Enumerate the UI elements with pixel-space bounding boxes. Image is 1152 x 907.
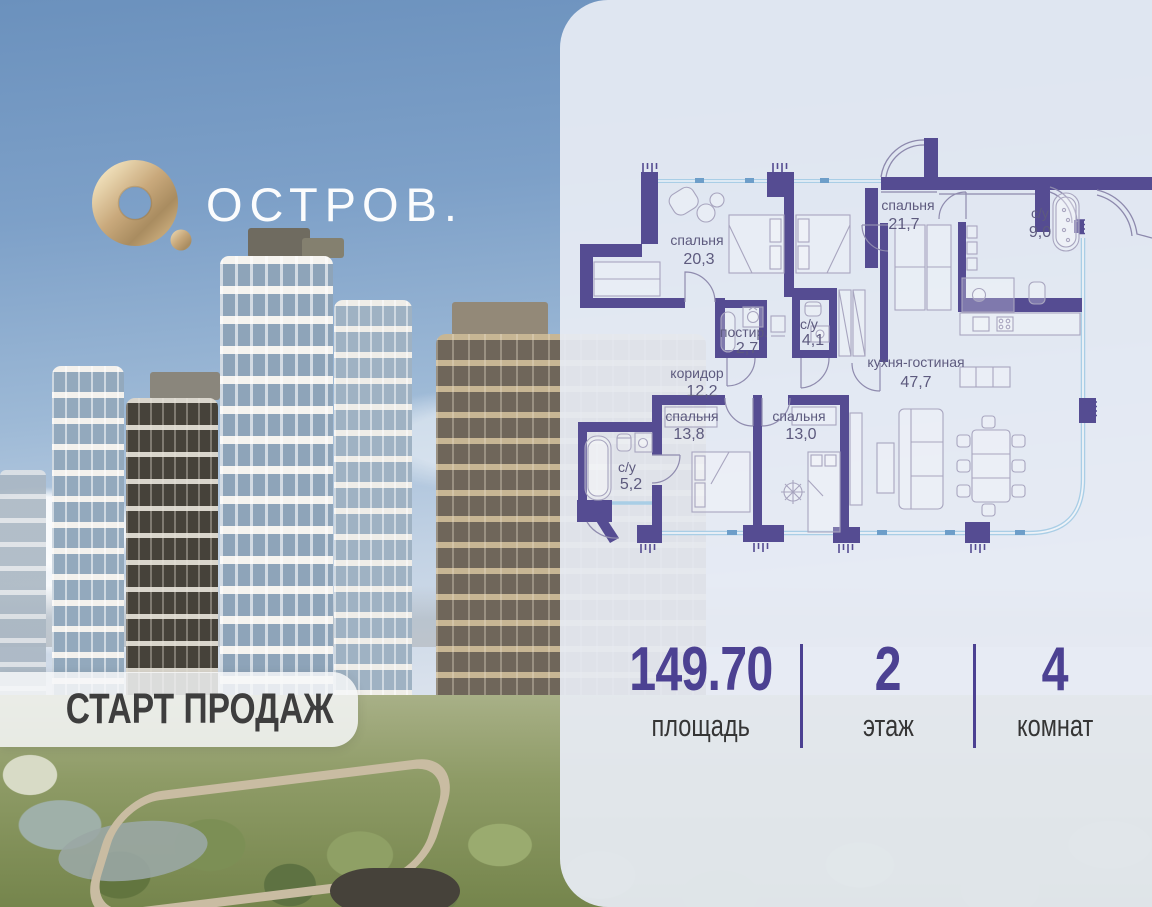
rooftop-structure: [452, 302, 548, 336]
room-label: спальня: [772, 408, 825, 424]
sales-start-badge: СТАРТ ПРОДАЖ: [0, 672, 358, 747]
room-label: с/у: [618, 459, 636, 475]
stat-area-label: площадь: [652, 708, 750, 744]
stat-floor-value: 2: [875, 640, 901, 700]
sales-start-label: СТАРТ ПРОДАЖ: [66, 685, 334, 734]
apartment-stats: 149.70 площадь 2 этаж 4 комнат: [602, 640, 1134, 752]
room-area: 21,7: [888, 216, 919, 233]
stat-rooms-value: 4: [1042, 640, 1068, 700]
room-label: постир.: [720, 324, 768, 340]
room-area: 2,7: [736, 340, 758, 357]
room-area: 47,7: [900, 374, 931, 391]
floor-plan: спальня 20,3 спальня 21,7 с/у 9,0 постир…: [577, 130, 1152, 560]
room-area: 13,0: [785, 426, 816, 443]
promo-banner: ОСТРОВ. СТАРТ ПРОДАЖ: [0, 0, 1152, 907]
room-label: спальня: [670, 232, 723, 248]
stat-rooms: 4 комнат: [976, 640, 1134, 752]
logo-o-mark-icon: [90, 155, 194, 253]
info-panel: спальня 20,3 спальня 21,7 с/у 9,0 постир…: [560, 0, 1152, 907]
room-label: спальня: [881, 197, 934, 213]
stat-floor: 2 этаж: [803, 640, 973, 752]
brand-name: ОСТРОВ.: [206, 177, 464, 232]
room-label: спальня: [665, 408, 718, 424]
room-label: с/у: [800, 316, 818, 332]
room-area: 20,3: [683, 251, 714, 268]
room-area: 5,2: [620, 476, 642, 493]
stat-floor-label: этаж: [863, 708, 914, 744]
room-area: 12,2: [686, 383, 717, 400]
room-label: кухня-гостиная: [867, 354, 964, 370]
stat-area: 149.70 площадь: [602, 640, 800, 752]
stat-area-value: 149.70: [629, 640, 772, 700]
room-label: коридор: [670, 365, 724, 381]
garden-canopy: [330, 868, 460, 907]
room-area: 4,1: [802, 332, 824, 349]
furniture: [585, 184, 1080, 532]
rooftop-structure: [150, 372, 220, 400]
room-area: 9,0: [1029, 224, 1051, 241]
room-area: 13,8: [673, 426, 704, 443]
floor-plan-svg: спальня 20,3 спальня 21,7 с/у 9,0 постир…: [577, 130, 1152, 560]
room-label: с/у: [1031, 205, 1049, 221]
brand-logo: ОСТРОВ.: [90, 155, 464, 253]
stat-rooms-label: комнат: [1017, 708, 1093, 744]
